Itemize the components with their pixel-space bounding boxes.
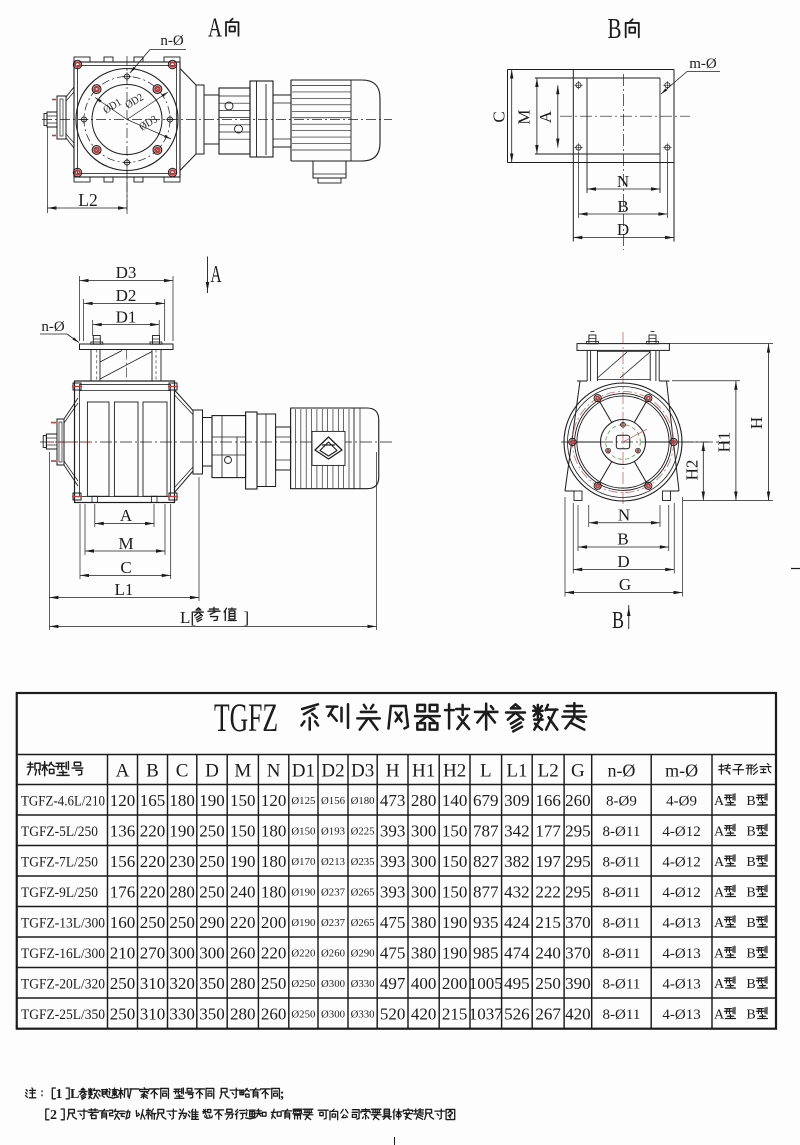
svg-text:M: M bbox=[515, 109, 534, 124]
svg-text:877: 877 bbox=[473, 882, 499, 901]
svg-text:Ø150: Ø150 bbox=[291, 825, 315, 837]
svg-text:;: ; bbox=[280, 1087, 285, 1102]
svg-text:A: A bbox=[120, 506, 133, 525]
svg-text:TGFZ-5L/250: TGFZ-5L/250 bbox=[21, 824, 98, 840]
svg-text:Ø225: Ø225 bbox=[351, 825, 375, 837]
svg-text:D1: D1 bbox=[116, 308, 137, 327]
svg-text:H: H bbox=[747, 417, 766, 429]
svg-text:L[: L[ bbox=[180, 608, 196, 627]
svg-text:A: A bbox=[714, 916, 725, 931]
svg-text:Ø180: Ø180 bbox=[351, 795, 375, 807]
svg-text:280: 280 bbox=[411, 791, 437, 810]
svg-text:160: 160 bbox=[110, 913, 136, 932]
svg-text:295: 295 bbox=[565, 821, 591, 840]
svg-text:A: A bbox=[714, 946, 725, 961]
svg-text:150: 150 bbox=[442, 882, 468, 901]
svg-text:380: 380 bbox=[411, 943, 437, 962]
svg-text:4-Ø13: 4-Ø13 bbox=[662, 1007, 700, 1023]
svg-text:300: 300 bbox=[411, 821, 437, 840]
svg-text:A: A bbox=[714, 885, 725, 900]
svg-text:H: H bbox=[386, 761, 400, 782]
svg-text:A: A bbox=[714, 824, 725, 839]
svg-text:250: 250 bbox=[535, 974, 561, 993]
svg-text:250: 250 bbox=[140, 913, 166, 932]
svg-text:A: A bbox=[116, 761, 130, 782]
svg-text:473: 473 bbox=[380, 791, 406, 810]
svg-text:1005: 1005 bbox=[469, 974, 503, 993]
svg-text:Ø300: Ø300 bbox=[321, 978, 345, 990]
svg-text:166: 166 bbox=[535, 791, 561, 810]
svg-text:1037: 1037 bbox=[469, 1004, 504, 1023]
svg-text:300: 300 bbox=[199, 943, 225, 962]
svg-text:200: 200 bbox=[261, 913, 287, 932]
svg-text:1: 1 bbox=[56, 1087, 63, 1102]
svg-text:8-Ø11: 8-Ø11 bbox=[603, 854, 641, 870]
svg-text:260: 260 bbox=[565, 791, 591, 810]
svg-text:L2: L2 bbox=[78, 190, 97, 210]
svg-text:120: 120 bbox=[110, 791, 136, 810]
svg-text:D1: D1 bbox=[292, 761, 315, 782]
svg-text:230: 230 bbox=[169, 852, 195, 871]
svg-text:Ø300: Ø300 bbox=[321, 1008, 345, 1020]
svg-text:165: 165 bbox=[140, 791, 166, 810]
svg-text:295: 295 bbox=[565, 852, 591, 871]
svg-text:Ø265: Ø265 bbox=[351, 886, 375, 898]
svg-text:n-Ø: n-Ø bbox=[41, 319, 64, 335]
svg-text:B: B bbox=[746, 824, 755, 839]
svg-text:177: 177 bbox=[535, 821, 561, 840]
svg-text:393: 393 bbox=[380, 852, 406, 871]
svg-text:B: B bbox=[746, 916, 755, 931]
svg-text:]: ] bbox=[244, 608, 250, 627]
svg-text:L: L bbox=[480, 761, 492, 782]
svg-text:197: 197 bbox=[535, 852, 561, 871]
svg-text:B: B bbox=[746, 977, 755, 992]
svg-text:TGFZ-16L/300: TGFZ-16L/300 bbox=[21, 946, 105, 962]
svg-text:8-Ø9: 8-Ø9 bbox=[606, 793, 637, 809]
svg-text:C: C bbox=[490, 111, 509, 122]
svg-text:250: 250 bbox=[199, 882, 225, 901]
svg-text:D3: D3 bbox=[116, 263, 137, 282]
svg-text:210: 210 bbox=[110, 943, 136, 962]
svg-text:B: B bbox=[746, 794, 755, 809]
svg-text:310: 310 bbox=[140, 1004, 166, 1023]
svg-text:D2: D2 bbox=[116, 286, 137, 305]
svg-text:L2: L2 bbox=[538, 761, 559, 782]
svg-text:310: 310 bbox=[140, 974, 166, 993]
svg-text:B: B bbox=[746, 885, 755, 900]
svg-text:190: 190 bbox=[442, 943, 468, 962]
svg-text:136: 136 bbox=[110, 821, 136, 840]
svg-text:8-Ø11: 8-Ø11 bbox=[603, 946, 641, 962]
svg-text:679: 679 bbox=[473, 791, 499, 810]
svg-text:300: 300 bbox=[411, 882, 437, 901]
svg-text:520: 520 bbox=[380, 1004, 406, 1023]
svg-text:280: 280 bbox=[230, 1004, 256, 1023]
svg-text:Ø220: Ø220 bbox=[291, 947, 315, 959]
svg-text:215: 215 bbox=[535, 913, 561, 932]
svg-text:TGFZ-25L/350: TGFZ-25L/350 bbox=[21, 1007, 105, 1023]
svg-text:432: 432 bbox=[504, 882, 530, 901]
svg-text:D: D bbox=[617, 220, 629, 239]
svg-text:L: L bbox=[70, 1087, 79, 1102]
svg-text:TGFZ: TGFZ bbox=[214, 695, 278, 740]
svg-text:Ø213: Ø213 bbox=[321, 856, 345, 868]
svg-text:4-Ø13: 4-Ø13 bbox=[662, 915, 700, 931]
svg-text:Ø290: Ø290 bbox=[351, 947, 375, 959]
svg-text:180: 180 bbox=[261, 852, 287, 871]
svg-text:TGFZ-7L/250: TGFZ-7L/250 bbox=[21, 854, 98, 870]
svg-text:250: 250 bbox=[110, 1004, 136, 1023]
svg-text:B: B bbox=[617, 197, 628, 216]
svg-text:320: 320 bbox=[169, 974, 195, 993]
svg-text:150: 150 bbox=[230, 791, 256, 810]
svg-text:827: 827 bbox=[473, 852, 499, 871]
svg-text:Ø330: Ø330 bbox=[351, 978, 375, 990]
svg-text:Ø237: Ø237 bbox=[321, 917, 345, 929]
svg-text:TGFZ-9L/250: TGFZ-9L/250 bbox=[21, 885, 98, 901]
svg-text:215: 215 bbox=[442, 1004, 468, 1023]
svg-text:985: 985 bbox=[473, 943, 499, 962]
svg-text:424: 424 bbox=[504, 913, 530, 932]
svg-text:B: B bbox=[746, 1007, 755, 1022]
svg-text:B: B bbox=[612, 608, 624, 634]
svg-text:TGFZ-20L/320: TGFZ-20L/320 bbox=[21, 976, 105, 992]
svg-text:4-Ø13: 4-Ø13 bbox=[662, 976, 700, 992]
svg-text:475: 475 bbox=[380, 943, 406, 962]
svg-text:330: 330 bbox=[169, 1004, 195, 1023]
svg-text:180: 180 bbox=[261, 821, 287, 840]
svg-text:Ø265: Ø265 bbox=[351, 917, 375, 929]
svg-text:Ø235: Ø235 bbox=[351, 856, 375, 868]
svg-text:220: 220 bbox=[140, 882, 166, 901]
svg-text:290: 290 bbox=[199, 913, 225, 932]
svg-text:190: 190 bbox=[230, 852, 256, 871]
svg-text:190: 190 bbox=[442, 913, 468, 932]
svg-text:250: 250 bbox=[169, 913, 195, 932]
svg-text:Ø193: Ø193 bbox=[321, 825, 345, 837]
svg-text:370: 370 bbox=[565, 913, 591, 932]
svg-text:A: A bbox=[536, 110, 555, 123]
svg-text:220: 220 bbox=[261, 943, 287, 962]
svg-text:240: 240 bbox=[230, 882, 256, 901]
svg-text:Ø190: Ø190 bbox=[291, 917, 315, 929]
svg-text:150: 150 bbox=[442, 852, 468, 871]
svg-text:D: D bbox=[205, 761, 219, 782]
svg-text:8-Ø11: 8-Ø11 bbox=[603, 885, 641, 901]
svg-text:Ø250: Ø250 bbox=[291, 1008, 315, 1020]
svg-text:L1: L1 bbox=[115, 580, 134, 599]
svg-text:D3: D3 bbox=[351, 761, 374, 782]
svg-text:n-Ø: n-Ø bbox=[160, 33, 183, 49]
svg-text:240: 240 bbox=[535, 943, 561, 962]
svg-text:190: 190 bbox=[169, 821, 195, 840]
svg-text:250: 250 bbox=[199, 852, 225, 871]
svg-text:120: 120 bbox=[261, 791, 287, 810]
svg-text:C: C bbox=[120, 558, 131, 577]
svg-text:ØD3: ØD3 bbox=[137, 113, 160, 133]
svg-text:Ø125: Ø125 bbox=[291, 795, 315, 807]
svg-text:300: 300 bbox=[169, 943, 195, 962]
svg-text:Ø237: Ø237 bbox=[321, 886, 345, 898]
svg-text:ØD2: ØD2 bbox=[123, 91, 145, 111]
svg-text:N: N bbox=[267, 761, 281, 782]
svg-text:A: A bbox=[714, 977, 725, 992]
svg-text:370: 370 bbox=[565, 943, 591, 962]
svg-text:C: C bbox=[176, 761, 189, 782]
svg-text:350: 350 bbox=[199, 974, 225, 993]
svg-text:176: 176 bbox=[110, 882, 136, 901]
svg-text:495: 495 bbox=[504, 974, 530, 993]
svg-text:H1: H1 bbox=[412, 761, 435, 782]
svg-text:267: 267 bbox=[535, 1004, 561, 1023]
svg-text:180: 180 bbox=[169, 791, 195, 810]
svg-text:222: 222 bbox=[535, 882, 561, 901]
svg-text:L1: L1 bbox=[506, 761, 527, 782]
svg-text:156: 156 bbox=[110, 852, 136, 871]
svg-text:935: 935 bbox=[473, 913, 499, 932]
svg-text:787: 787 bbox=[473, 821, 499, 840]
svg-text:280: 280 bbox=[169, 882, 195, 901]
svg-text:B: B bbox=[608, 14, 622, 45]
svg-text:M: M bbox=[234, 761, 251, 782]
svg-text:2: 2 bbox=[50, 1108, 57, 1123]
svg-text:220: 220 bbox=[140, 852, 166, 871]
svg-text:526: 526 bbox=[504, 1004, 530, 1023]
svg-text:400: 400 bbox=[411, 974, 437, 993]
svg-text:ØD1: ØD1 bbox=[101, 96, 123, 116]
svg-text:420: 420 bbox=[411, 1004, 437, 1023]
svg-text:250: 250 bbox=[110, 974, 136, 993]
svg-text:TGFZ-13L/300: TGFZ-13L/300 bbox=[21, 915, 105, 931]
svg-text:4-Ø12: 4-Ø12 bbox=[662, 885, 700, 901]
svg-text:474: 474 bbox=[504, 943, 530, 962]
svg-text:180: 180 bbox=[261, 882, 287, 901]
svg-text:G: G bbox=[571, 761, 585, 782]
svg-text:4-Ø9: 4-Ø9 bbox=[666, 793, 697, 809]
svg-text:4-Ø12: 4-Ø12 bbox=[662, 854, 700, 870]
svg-text:Ø170: Ø170 bbox=[291, 856, 315, 868]
svg-text:B: B bbox=[617, 530, 628, 549]
svg-text:4-Ø12: 4-Ø12 bbox=[662, 824, 700, 840]
svg-text:M: M bbox=[118, 534, 133, 553]
svg-text:270: 270 bbox=[140, 943, 166, 962]
svg-text:m-Ø: m-Ø bbox=[689, 56, 717, 72]
svg-text:393: 393 bbox=[380, 882, 406, 901]
svg-text:Ø156: Ø156 bbox=[321, 795, 345, 807]
svg-text:8-Ø11: 8-Ø11 bbox=[603, 915, 641, 931]
svg-text:H2: H2 bbox=[683, 460, 702, 481]
svg-text:Ø190: Ø190 bbox=[291, 886, 315, 898]
svg-text:250: 250 bbox=[261, 974, 287, 993]
svg-text:4-Ø13: 4-Ø13 bbox=[662, 946, 700, 962]
svg-text:N: N bbox=[617, 172, 629, 191]
svg-text:TGFZ-4.6L/210: TGFZ-4.6L/210 bbox=[21, 793, 105, 809]
svg-text:D: D bbox=[617, 552, 629, 571]
svg-text:150: 150 bbox=[442, 821, 468, 840]
svg-text:m-Ø: m-Ø bbox=[665, 761, 698, 781]
svg-text:295: 295 bbox=[565, 882, 591, 901]
svg-text:497: 497 bbox=[380, 974, 406, 993]
svg-text:250: 250 bbox=[199, 821, 225, 840]
svg-text:380: 380 bbox=[411, 913, 437, 932]
svg-text:A: A bbox=[208, 13, 222, 43]
svg-text:300: 300 bbox=[411, 852, 437, 871]
svg-text:A: A bbox=[714, 794, 725, 809]
svg-text:150: 150 bbox=[230, 821, 256, 840]
svg-text:B: B bbox=[146, 761, 159, 782]
svg-text:A: A bbox=[211, 262, 222, 288]
svg-text:390: 390 bbox=[565, 974, 591, 993]
svg-text:190: 190 bbox=[199, 791, 225, 810]
svg-text:220: 220 bbox=[230, 913, 256, 932]
svg-text:B: B bbox=[746, 855, 755, 870]
svg-text:420: 420 bbox=[565, 1004, 591, 1023]
svg-text:N: N bbox=[618, 506, 630, 525]
svg-text:n-Ø: n-Ø bbox=[607, 761, 635, 781]
svg-text:309: 309 bbox=[504, 791, 530, 810]
svg-text:B: B bbox=[746, 946, 755, 961]
svg-text:350: 350 bbox=[199, 1004, 225, 1023]
svg-text:8-Ø11: 8-Ø11 bbox=[603, 824, 641, 840]
svg-text:H2: H2 bbox=[443, 761, 466, 782]
svg-text:8-Ø11: 8-Ø11 bbox=[603, 1007, 641, 1023]
svg-text:H1: H1 bbox=[715, 432, 734, 453]
svg-text:342: 342 bbox=[504, 821, 530, 840]
svg-text:A: A bbox=[714, 1007, 725, 1022]
svg-text:140: 140 bbox=[442, 791, 468, 810]
svg-text:8-Ø11: 8-Ø11 bbox=[603, 976, 641, 992]
svg-text:D2: D2 bbox=[321, 761, 344, 782]
svg-text:382: 382 bbox=[504, 852, 530, 871]
svg-text:220: 220 bbox=[140, 821, 166, 840]
svg-text:260: 260 bbox=[230, 943, 256, 962]
svg-text:393: 393 bbox=[380, 821, 406, 840]
svg-text:Ø250: Ø250 bbox=[291, 978, 315, 990]
svg-text:G: G bbox=[619, 575, 631, 594]
svg-text:Ø330: Ø330 bbox=[351, 1008, 375, 1020]
svg-text:Ø260: Ø260 bbox=[321, 947, 345, 959]
svg-text:200: 200 bbox=[442, 974, 468, 993]
svg-text:280: 280 bbox=[230, 974, 256, 993]
svg-text:260: 260 bbox=[261, 1004, 287, 1023]
svg-text:A: A bbox=[714, 855, 725, 870]
svg-text:475: 475 bbox=[380, 913, 406, 932]
